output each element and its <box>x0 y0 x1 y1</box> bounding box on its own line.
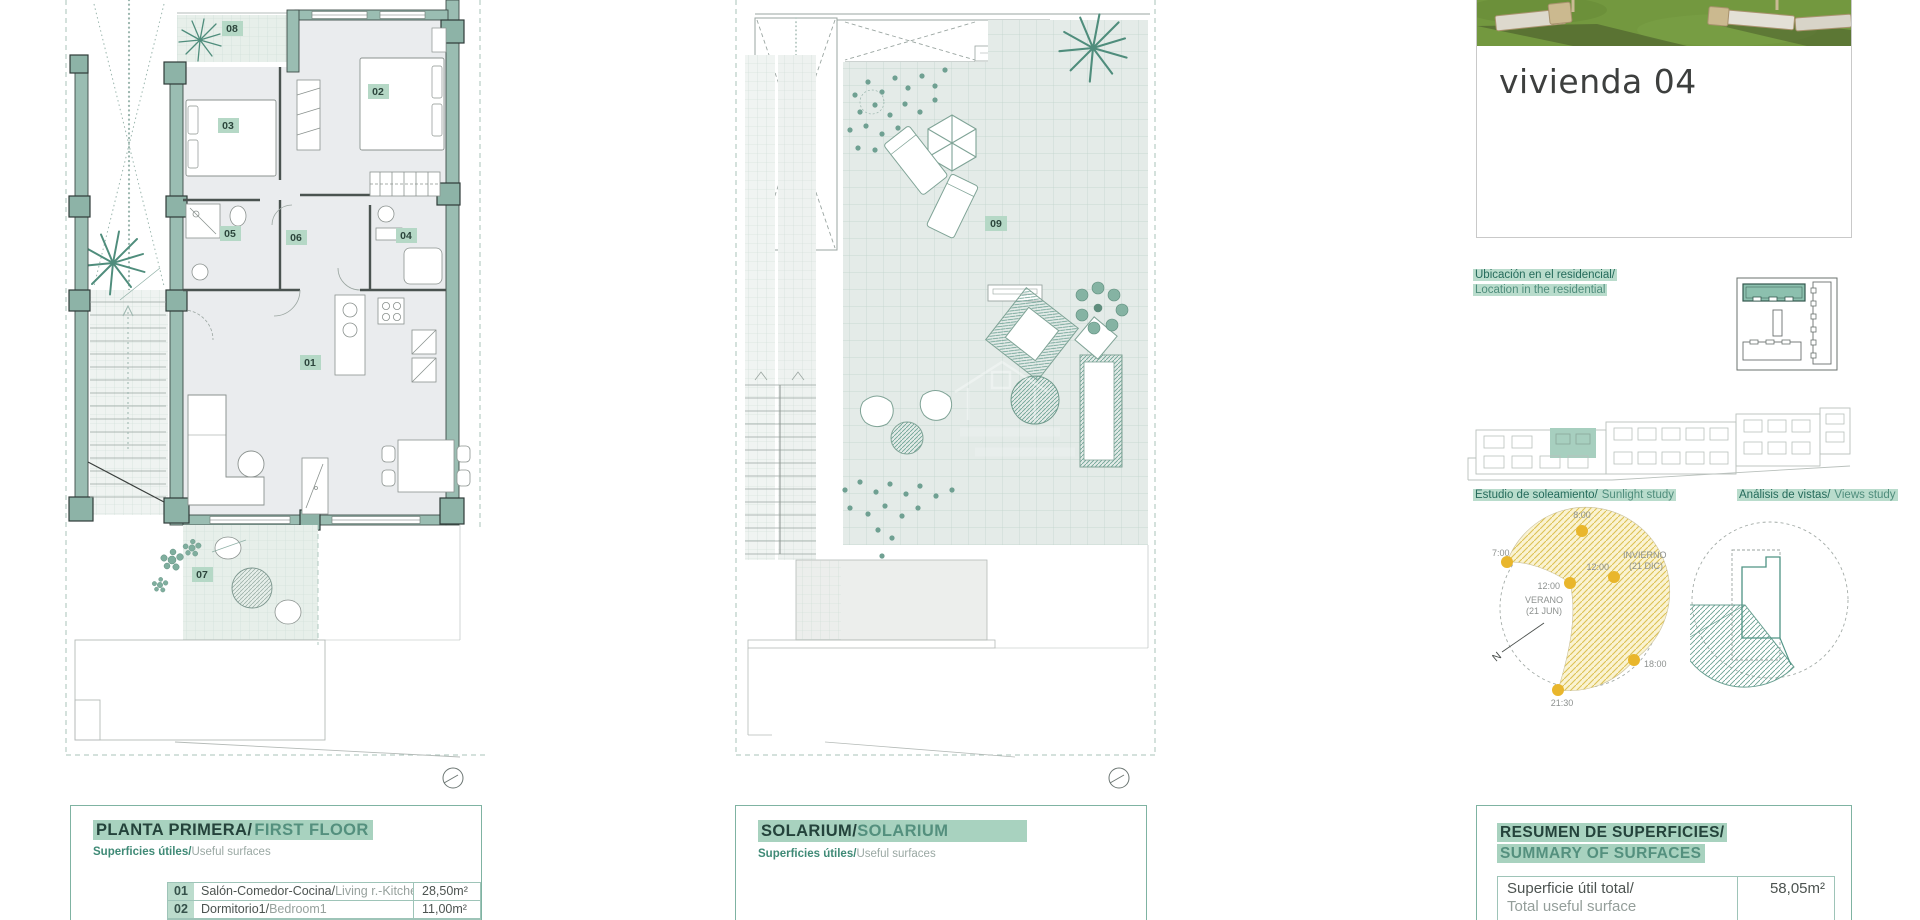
dwelling-title: vivienda 04 <box>1499 62 1851 101</box>
winter-label: INVIERNO <box>1623 550 1667 560</box>
sunlight-diagram: 8:00 7:00 12:00 12:00 18:00 21:30 VERANO… <box>1492 505 1684 720</box>
room-label-07: 07 <box>196 569 208 581</box>
solarium-plan: 09 <box>730 0 1160 800</box>
bed-icon <box>186 100 276 176</box>
room-label-04: 04 <box>400 230 412 242</box>
room-label-03: 03 <box>222 120 234 132</box>
room-label-06: 06 <box>290 232 302 244</box>
terrace-07 <box>152 525 318 645</box>
brochure-sheet: 01 02 03 04 05 06 07 08 <box>0 0 1920 920</box>
first-floor-panel: PLANTA PRIMERA/FIRST FLOOR Superficies ú… <box>70 805 482 920</box>
terrace-08 <box>177 13 299 62</box>
room-label-01: 01 <box>304 357 316 369</box>
summary-row: Superficie útil total/ Total useful surf… <box>1498 877 1834 920</box>
summer-date: (21 JUN) <box>1526 606 1562 616</box>
location-label-en: Location in the residential <box>1473 284 1607 296</box>
time-12-winter: 12:00 <box>1586 562 1609 572</box>
room-label-08: 08 <box>226 23 238 35</box>
summary-table: Superficie útil total/ Total useful surf… <box>1497 876 1835 920</box>
summary-value: 58,05m² <box>1738 877 1834 920</box>
summer-label: VERANO <box>1525 595 1563 605</box>
views-study-label: Análisis de vistas/Views study <box>1737 488 1898 503</box>
lower-areas <box>748 545 1148 757</box>
first-floor-panel-subtitle: Superficies útiles/Useful surfaces <box>93 846 481 858</box>
section-marker-icon <box>1109 768 1129 788</box>
views-label-en: Views study <box>1832 489 1897 501</box>
elevation-highlighted-unit <box>1550 428 1596 458</box>
row-name: Dormitorio1/Bedroom1 <box>194 901 414 918</box>
row-name: Salón-Comedor-Cocina/Living r.-Kitchen <box>194 883 414 900</box>
solarium-panel-title: SOLARIUM/SOLARIUM <box>758 820 1146 842</box>
time-7: 7:00 <box>1492 548 1510 558</box>
winter-date: (21 DIC) <box>1629 561 1663 571</box>
sunlight-label-en: Sunlight study <box>1600 489 1676 501</box>
north-line <box>1502 623 1544 652</box>
title-en: FIRST FLOOR <box>254 820 372 840</box>
first-floor-panel-title: PLANTA PRIMERA/FIRST FLOOR <box>93 820 481 840</box>
table-row: 01 Salón-Comedor-Cocina/Living r.-Kitche… <box>168 883 480 901</box>
summary-title: RESUMEN DE SUPERFICIES/ SUMMARY OF SURFA… <box>1497 822 1851 864</box>
section-marker-icon <box>443 768 463 788</box>
solarium-panel-subtitle: Superficies útiles/Useful surfaces <box>758 848 1146 860</box>
surfaces-table: 01 Salón-Comedor-Cocina/Living r.-Kitche… <box>167 882 481 920</box>
sunlight-study-label: Estudio de soleamiento/Sunlight study <box>1473 488 1676 503</box>
time-8: 8:00 <box>1573 510 1591 520</box>
dwelling-card: vivienda 04 <box>1476 0 1852 238</box>
time-2130: 21:30 <box>1551 698 1574 708</box>
table-row: 02 Dormitorio1/Bedroom1 11,00m² <box>168 901 480 919</box>
corner-sofa <box>1075 317 1122 467</box>
title-es: PLANTA PRIMERA/ <box>93 820 254 840</box>
room-label-02: 02 <box>372 86 384 98</box>
row-area: 11,00m² <box>414 901 480 918</box>
loungers-photo <box>1477 0 1851 46</box>
residential-elevation <box>1462 396 1854 484</box>
row-area: 28,50m² <box>414 883 480 900</box>
location-label: Ubicación en el residencial/ Location in… <box>1473 268 1617 298</box>
room-label-09: 09 <box>990 218 1002 230</box>
time-12-summer: 12:00 <box>1537 581 1560 591</box>
first-floor-plan: 01 02 03 04 05 06 07 08 <box>60 0 490 800</box>
time-18: 18:00 <box>1644 659 1667 669</box>
row-number: 02 <box>168 901 194 918</box>
tv-unit <box>302 458 328 514</box>
site-plan <box>1735 276 1845 374</box>
summary-panel: RESUMEN DE SUPERFICIES/ SUMMARY OF SURFA… <box>1476 805 1852 920</box>
views-label-es: Análisis de vistas/ <box>1737 489 1832 501</box>
views-diagram <box>1690 505 1860 720</box>
solarium-panel: SOLARIUM/SOLARIUM Superficies útiles/Use… <box>735 805 1147 920</box>
room-label-05: 05 <box>224 228 236 240</box>
sunlight-label-es: Estudio de soleamiento/ <box>1473 489 1600 501</box>
location-label-es: Ubicación en el residencial/ <box>1473 269 1617 281</box>
row-number: 01 <box>168 883 194 900</box>
